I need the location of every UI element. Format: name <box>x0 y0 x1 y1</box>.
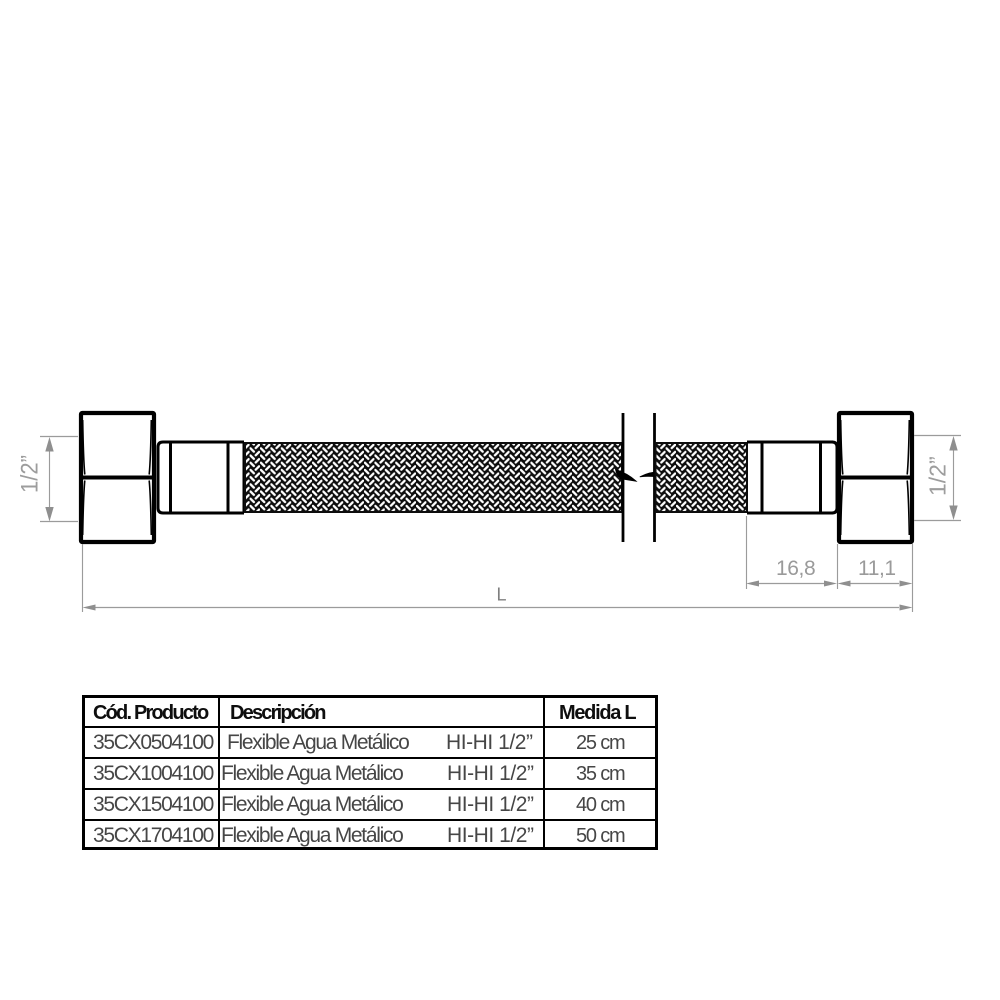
svg-text:16,8: 16,8 <box>776 557 815 580</box>
svg-text:1/2”: 1/2” <box>925 456 951 496</box>
svg-text:1/2”: 1/2” <box>16 455 43 493</box>
svg-text:11,1: 11,1 <box>858 557 896 580</box>
svg-text:L: L <box>497 585 507 605</box>
